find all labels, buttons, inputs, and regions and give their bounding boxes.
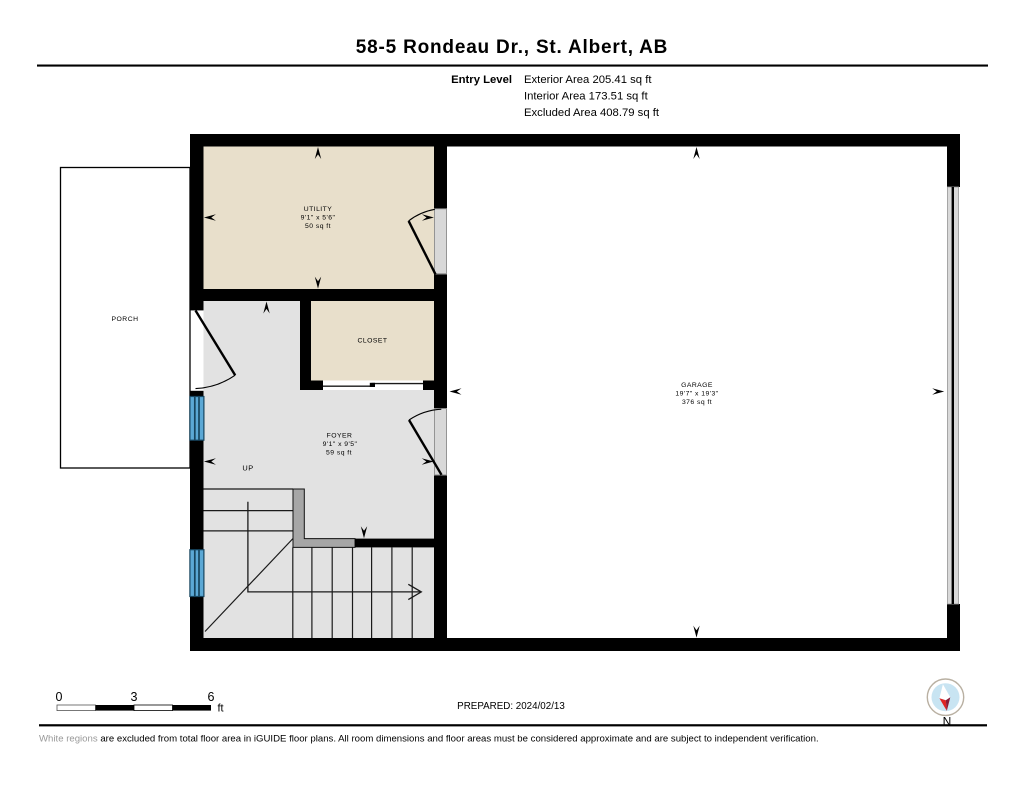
- svg-text:Exterior Area 205.41 sq ft: Exterior Area 205.41 sq ft: [524, 74, 652, 86]
- svg-text:ft: ft: [218, 703, 224, 715]
- svg-text:59 sq ft: 59 sq ft: [326, 450, 352, 457]
- svg-text:PORCH: PORCH: [111, 316, 138, 323]
- svg-text:UTILITY: UTILITY: [304, 206, 332, 213]
- svg-text:376 sq ft: 376 sq ft: [682, 399, 712, 406]
- svg-text:6: 6: [208, 690, 215, 704]
- svg-text:0: 0: [56, 690, 63, 704]
- svg-text:58-5 Rondeau Dr., St. Albert,: 58-5 Rondeau Dr., St. Albert, AB: [356, 37, 668, 58]
- svg-text:3: 3: [131, 690, 138, 704]
- svg-text:CLOSET: CLOSET: [358, 337, 388, 344]
- svg-text:FOYER: FOYER: [327, 433, 353, 440]
- svg-text:50 sq ft: 50 sq ft: [305, 223, 331, 230]
- svg-text:9'1" x 9'5": 9'1" x 9'5": [323, 441, 358, 448]
- svg-text:UP: UP: [242, 463, 253, 472]
- svg-text:Interior Area 173.51 sq ft: Interior Area 173.51 sq ft: [524, 90, 649, 102]
- svg-text:GARAGE: GARAGE: [681, 382, 713, 389]
- svg-text:19'7" x 19'3": 19'7" x 19'3": [675, 391, 718, 398]
- svg-text:White regions are excluded fro: White regions are excluded from total fl…: [39, 734, 819, 745]
- svg-text:Entry Level: Entry Level: [451, 74, 512, 86]
- svg-text:Excluded Area 408.79 sq ft: Excluded Area 408.79 sq ft: [524, 107, 660, 119]
- svg-text:PREPARED: 2024/02/13: PREPARED: 2024/02/13: [457, 701, 565, 712]
- svg-text:9'1" x 5'6": 9'1" x 5'6": [301, 215, 336, 222]
